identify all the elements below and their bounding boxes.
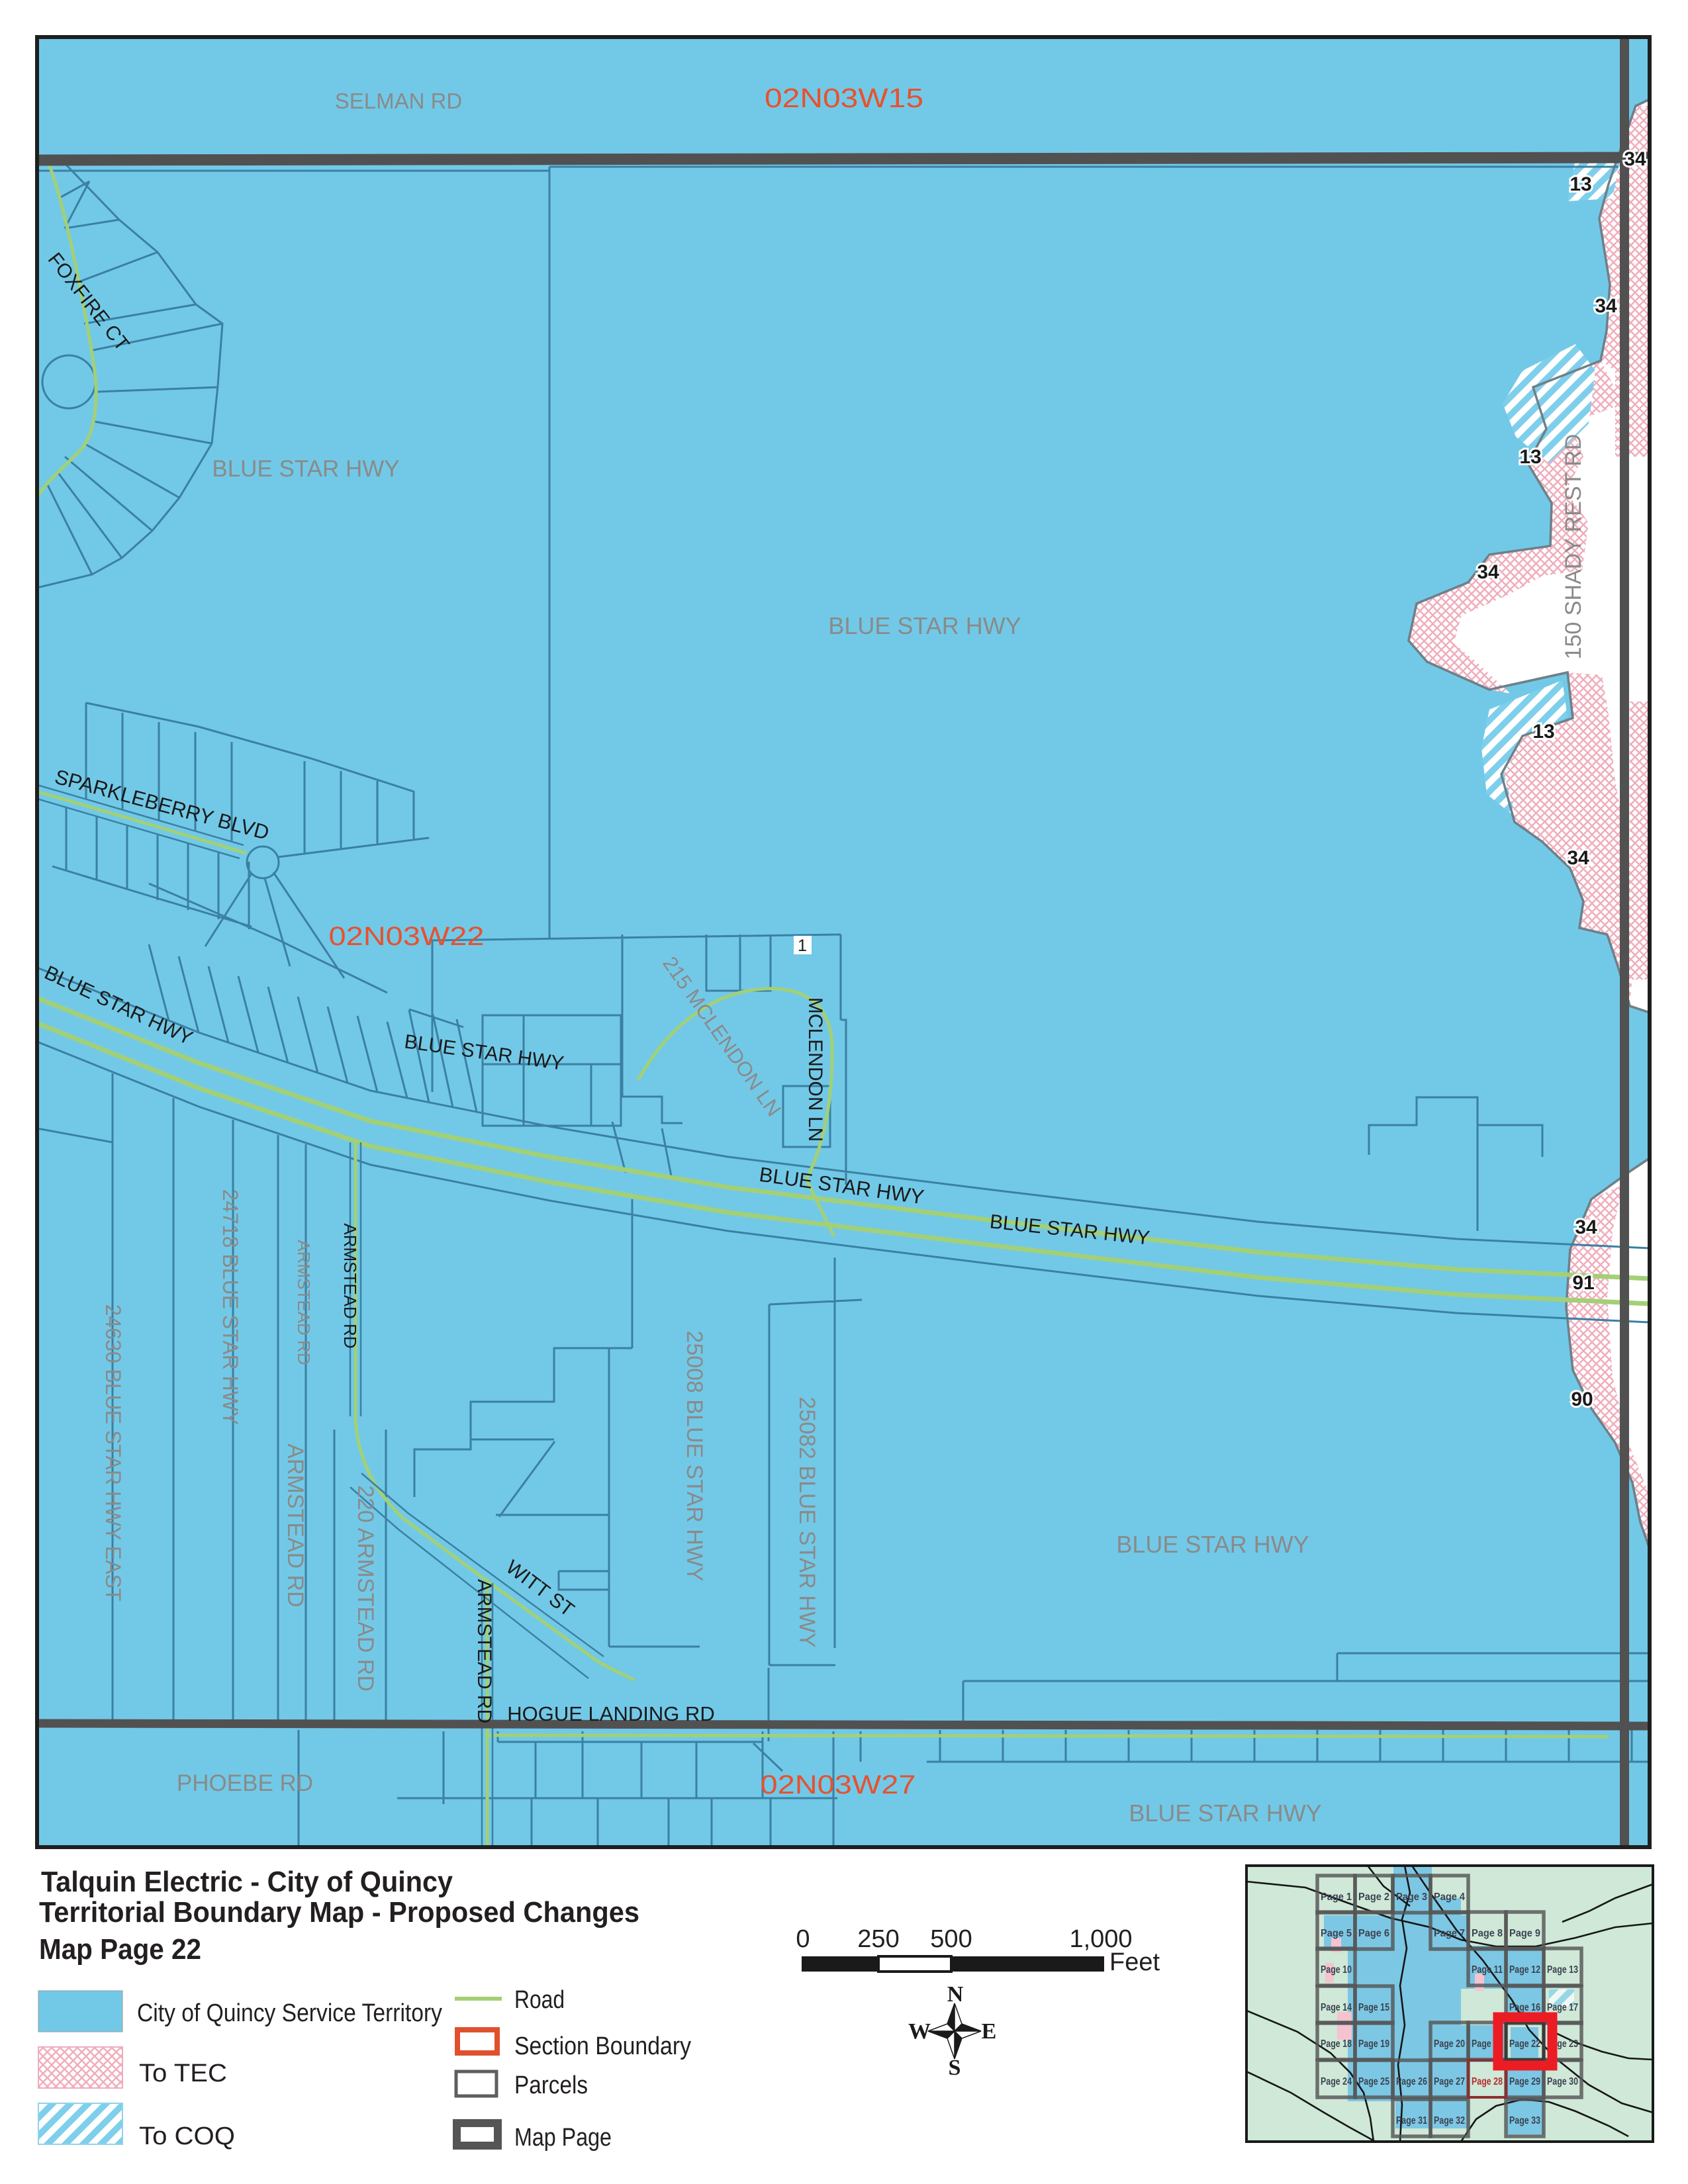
svg-text:Page 20: Page 20 — [1434, 2038, 1465, 2050]
svg-text:To COQ: To COQ — [139, 2122, 235, 2150]
svg-text:24630 BLUE STAR HWY EAST: 24630 BLUE STAR HWY EAST — [101, 1304, 125, 1602]
svg-text:Page 12: Page 12 — [1509, 1964, 1540, 1976]
svg-text:500: 500 — [930, 1925, 972, 1953]
svg-text:Page 24: Page 24 — [1321, 2076, 1352, 2087]
svg-text:Page 19: Page 19 — [1358, 2038, 1389, 2050]
svg-text:Page 9: Page 9 — [1509, 1928, 1540, 1939]
svg-text:02N03W22: 02N03W22 — [329, 922, 485, 951]
svg-text:25008 BLUE STAR HWY: 25008 BLUE STAR HWY — [682, 1330, 707, 1581]
svg-text:Page 26: Page 26 — [1396, 2076, 1427, 2087]
svg-text:Page 16: Page 16 — [1509, 2002, 1540, 2013]
svg-text:HOGUE LANDING RD: HOGUE LANDING RD — [507, 1702, 714, 1725]
svg-text:PHOEBE RD: PHOEBE RD — [177, 1770, 313, 1796]
svg-text:ARMSTEAD RD: ARMSTEAD RD — [283, 1443, 308, 1607]
svg-text:W: W — [908, 2019, 931, 2044]
svg-text:ARMSTEAD RD: ARMSTEAD RD — [473, 1579, 495, 1723]
svg-text:34: 34 — [1624, 148, 1646, 170]
svg-text:Page 15: Page 15 — [1358, 2002, 1389, 2013]
svg-text:ARMSTEAD RD: ARMSTEAD RD — [294, 1240, 314, 1365]
svg-text:N: N — [947, 1982, 964, 2007]
svg-text:Page 18: Page 18 — [1321, 2038, 1352, 2050]
svg-text:Page 6: Page 6 — [1358, 1928, 1389, 1939]
svg-text:E: E — [982, 2019, 997, 2044]
svg-text:220 ARMSTEAD RD: 220 ARMSTEAD RD — [353, 1485, 378, 1692]
svg-text:Page 22: Page 22 — [1509, 2038, 1540, 2050]
svg-text:BLUE STAR HWY: BLUE STAR HWY — [1116, 1531, 1309, 1558]
svg-text:1: 1 — [798, 936, 807, 955]
svg-text:Parcels: Parcels — [514, 2071, 588, 2099]
svg-text:Page 3: Page 3 — [1396, 1891, 1427, 1903]
svg-text:BLUE STAR HWY: BLUE STAR HWY — [1129, 1799, 1321, 1827]
svg-text:Page 7: Page 7 — [1434, 1928, 1465, 1939]
svg-text:34: 34 — [1595, 295, 1617, 317]
svg-text:0: 0 — [796, 1925, 810, 1953]
svg-text:SELMAN RD: SELMAN RD — [335, 89, 463, 113]
svg-text:Page 14: Page 14 — [1321, 2002, 1352, 2013]
svg-text:City of Quincy Service Territo: City of Quincy Service Territory — [137, 1999, 442, 2027]
svg-text:Page 31: Page 31 — [1396, 2115, 1427, 2126]
svg-text:Page 8: Page 8 — [1472, 1928, 1503, 1939]
svg-text:24718 BLUE STAR HWY: 24718 BLUE STAR HWY — [218, 1189, 242, 1426]
svg-text:ARMSTEAD RD: ARMSTEAD RD — [340, 1223, 360, 1348]
svg-text:Page 28: Page 28 — [1472, 2076, 1503, 2087]
svg-text:Page 30: Page 30 — [1547, 2076, 1578, 2087]
svg-text:Page 10: Page 10 — [1321, 1964, 1352, 1976]
svg-text:25082 BLUE STAR HWY: 25082 BLUE STAR HWY — [794, 1396, 820, 1647]
svg-text:Feet: Feet — [1109, 1948, 1160, 1976]
svg-text:Map Page 22: Map Page 22 — [39, 1933, 201, 1966]
svg-text:250: 250 — [857, 1925, 899, 1953]
svg-text:Page 25: Page 25 — [1358, 2076, 1389, 2087]
svg-text:BLUE STAR HWY: BLUE STAR HWY — [212, 456, 399, 482]
svg-text:90: 90 — [1571, 1388, 1593, 1410]
svg-text:34: 34 — [1567, 847, 1589, 869]
svg-text:Map Page: Map Page — [514, 2124, 612, 2152]
svg-text:13: 13 — [1532, 721, 1554, 743]
svg-text:Page 29: Page 29 — [1509, 2076, 1540, 2087]
svg-text:Page 11: Page 11 — [1472, 1964, 1503, 1976]
svg-text:Page 1: Page 1 — [1321, 1891, 1352, 1903]
svg-text:Page 17: Page 17 — [1547, 2002, 1578, 2013]
svg-text:Talquin Electric - City of Qui: Talquin Electric - City of Quincy — [41, 1866, 453, 1898]
svg-text:13: 13 — [1519, 446, 1541, 468]
svg-text:02N03W15: 02N03W15 — [765, 83, 923, 113]
svg-text:MCLENDON LN: MCLENDON LN — [804, 997, 826, 1142]
svg-text:34: 34 — [1575, 1216, 1597, 1238]
svg-text:Page 27: Page 27 — [1434, 2076, 1465, 2087]
svg-text:Page 13: Page 13 — [1547, 1964, 1578, 1976]
svg-text:91: 91 — [1572, 1272, 1594, 1294]
svg-text:Road: Road — [514, 1986, 565, 2014]
svg-text:Page 4: Page 4 — [1434, 1891, 1465, 1903]
svg-text:Page 5: Page 5 — [1321, 1928, 1352, 1939]
svg-text:To TEC: To TEC — [139, 2060, 227, 2087]
svg-text:13: 13 — [1570, 173, 1591, 195]
svg-text:BLUE STAR HWY: BLUE STAR HWY — [828, 612, 1021, 639]
svg-text:Page 33: Page 33 — [1509, 2115, 1540, 2126]
svg-text:S: S — [949, 2056, 961, 2080]
svg-text:Territorial Boundary Map - Pro: Territorial Boundary Map - Proposed Chan… — [39, 1896, 639, 1929]
svg-text:02N03W27: 02N03W27 — [761, 1770, 916, 1799]
svg-text:Page 32: Page 32 — [1434, 2115, 1465, 2126]
svg-text:Section Boundary: Section Boundary — [514, 2032, 691, 2060]
svg-text:34: 34 — [1477, 561, 1499, 583]
svg-text:Page 2: Page 2 — [1358, 1891, 1389, 1903]
svg-text:150 SHADY REST RD: 150 SHADY REST RD — [1561, 434, 1586, 660]
